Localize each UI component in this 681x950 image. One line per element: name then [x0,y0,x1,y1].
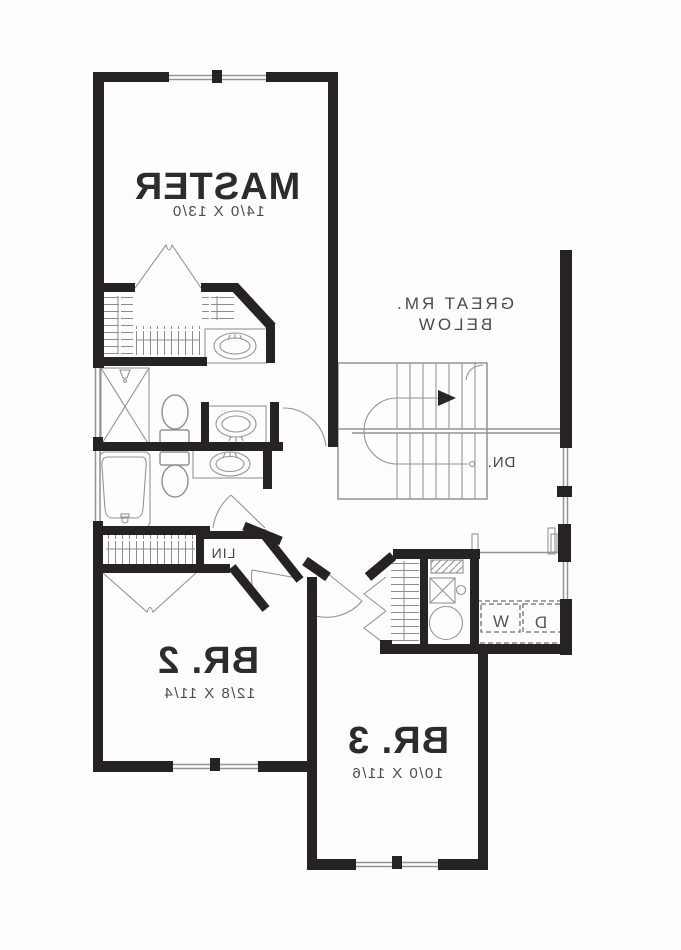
toilet-icon [160,452,189,497]
window-mullion [557,486,572,497]
sink-oval-icon [207,406,266,444]
wall-bath-divider [93,442,283,451]
wall-bath-bottom [93,526,210,535]
linen-closet-label: LIN [211,545,236,561]
wall-right-door-jamb [558,524,571,562]
washer-dryer-area [477,601,564,643]
window-mullion [210,758,220,771]
floor-plan-page: MASTER 14/0 X 13/0 GREAT RM. BELOW DN. L… [0,0,681,950]
sink-oval-icon [205,329,267,363]
wall-closet3-jamb [380,640,392,654]
sink-oval-icon [193,450,264,478]
br3-door-arc [316,601,362,617]
hall-bath-fixtures [100,450,264,527]
bath-door-arc [213,495,231,528]
window-mullion [392,856,402,869]
wall-diagonal-hall-2 [232,567,266,609]
stair-treads [397,363,475,499]
shower-x-icon [101,368,149,445]
master-room-dims: 14/0 X 13/0 [171,203,264,220]
br2-closet-double-door [103,573,196,612]
wall-closet2-bottom [93,564,203,573]
br3-closet-bifold-door [364,577,386,645]
wall-master-door-jamb [270,402,279,451]
wall-top-left [93,72,169,82]
laundry-closet-front [472,534,558,553]
br3-room-dims: 10/0 X 11/6 [351,765,443,782]
wall-utility-right [470,556,479,646]
washer-label: W [493,612,509,631]
arrow-right-icon [438,390,456,406]
wall-vanity2-stub [201,402,209,451]
stair-landing-rail [338,429,560,433]
wall-br2-bottom-left [93,761,173,772]
water-heater-circle-icon [430,607,463,640]
floor-plan-drawing: MASTER 14/0 X 13/0 GREAT RM. BELOW DN. L… [0,0,681,950]
wall-master-left [93,72,104,368]
wall-below-closet [93,357,207,366]
dryer-label: D [535,613,547,632]
br2-room-label: BR. 2 [157,640,259,682]
br3-door-leaf [327,573,362,601]
window-mullion [212,70,222,83]
furnace-x-box-icon [430,578,466,603]
wall-br3-right [478,648,488,870]
wall-br2-left [93,527,103,772]
br3-room-label: BR. 3 [347,720,449,762]
wall-vanity3-stub [263,451,272,489]
wall-diagonal-br3-jamb [305,561,328,577]
wall-br3-bottom-left [307,859,356,870]
bathtub-icon [100,452,150,527]
toilet-icon [160,395,189,443]
shelf-icon [431,560,463,573]
wall-utility-left [420,556,428,646]
master-closet-double-door [135,245,201,288]
wall-lin-bottom [196,564,230,573]
br3-closet [389,559,421,643]
wall-br3-left [307,577,317,870]
stairs-icon [338,363,560,499]
closet-hatch-icon-group [104,294,421,643]
master-room-label: MASTER [134,166,300,208]
master-door-arc [283,408,326,446]
stair-down-label: DN. [487,454,516,471]
utility-closet [430,560,466,640]
great-room-sublabel: BELOW [416,315,492,334]
br2-room-dims: 12/8 X 11/4 [163,685,255,702]
wall-closet-stub-left [93,283,135,292]
wall-top-right [266,72,338,82]
wall-master-right [328,72,338,447]
wall-right-upper [560,250,572,448]
br2-closet [104,535,196,564]
great-room-label: GREAT RM. [394,294,514,313]
wall-diagonal-closet [234,286,272,327]
